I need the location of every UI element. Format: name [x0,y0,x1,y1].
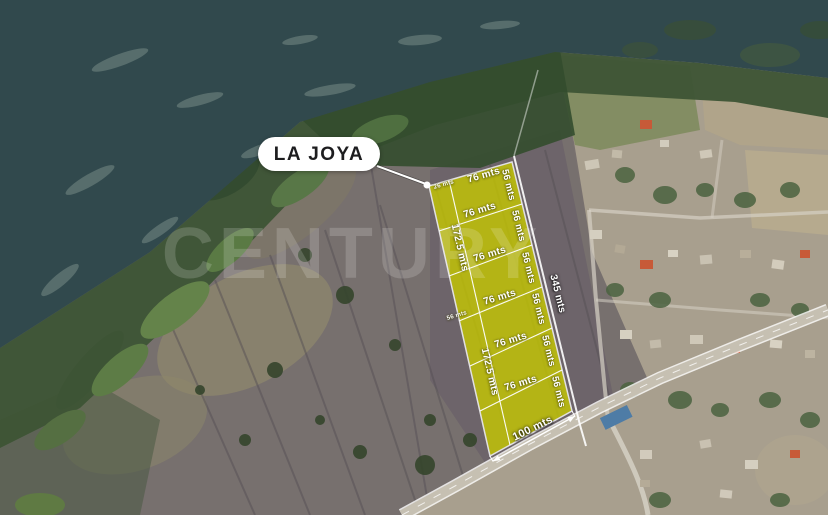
place-name-label: LA JOYA [274,145,364,164]
map-canvas: CENTURY 76 mts 26 mts 76 mts 76 mts 76 m… [0,0,828,515]
place-name-pill: LA JOYA [258,137,380,171]
